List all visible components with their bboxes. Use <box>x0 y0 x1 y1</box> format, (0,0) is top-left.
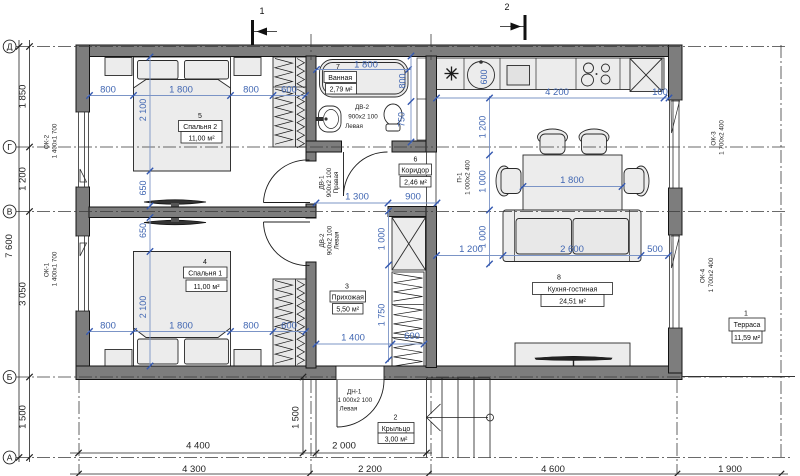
svg-text:11,59 м²: 11,59 м² <box>734 335 761 342</box>
svg-text:2 100: 2 100 <box>138 296 148 319</box>
svg-text:1 800: 1 800 <box>169 321 193 332</box>
svg-text:5,50 м²: 5,50 м² <box>336 307 359 314</box>
svg-text:1 800: 1 800 <box>560 175 584 186</box>
svg-text:7: 7 <box>336 64 340 71</box>
svg-text:В: В <box>7 207 13 217</box>
svg-text:6: 6 <box>414 157 418 164</box>
svg-text:ДН-1: ДН-1 <box>347 389 362 396</box>
svg-text:Крыльцо: Крыльцо <box>382 426 411 433</box>
svg-text:Кухня-гостиная: Кухня-гостиная <box>548 286 598 293</box>
svg-text:1 400: 1 400 <box>341 333 365 344</box>
svg-text:ОК-2: ОК-2 <box>44 134 51 149</box>
svg-text:2: 2 <box>394 415 398 422</box>
svg-text:ДВ-2: ДВ-2 <box>319 233 326 248</box>
svg-text:1 200: 1 200 <box>18 167 29 191</box>
svg-text:1 750: 1 750 <box>377 304 387 327</box>
svg-text:Спальня 2: Спальня 2 <box>183 124 217 131</box>
svg-text:1 200: 1 200 <box>459 244 483 255</box>
svg-text:4 300: 4 300 <box>182 464 206 475</box>
svg-text:Ванная: Ванная <box>328 75 352 82</box>
svg-text:1 200: 1 200 <box>478 116 488 139</box>
svg-text:ОК-4: ОК-4 <box>700 268 707 283</box>
svg-text:Левая: Левая <box>345 123 363 130</box>
svg-text:1 800: 1 800 <box>354 60 378 71</box>
svg-text:1 000: 1 000 <box>377 228 387 251</box>
svg-text:1: 1 <box>259 6 264 16</box>
svg-text:1 500: 1 500 <box>291 406 301 429</box>
svg-text:1 300: 1 300 <box>345 192 369 203</box>
svg-text:4 600: 4 600 <box>541 464 565 475</box>
svg-text:11,00 м²: 11,00 м² <box>193 284 220 291</box>
svg-text:1 700х2 400: 1 700х2 400 <box>719 120 726 155</box>
svg-text:А: А <box>7 453 13 463</box>
svg-text:900х2 100: 900х2 100 <box>348 114 378 121</box>
svg-text:Прихожая: Прихожая <box>331 294 364 301</box>
svg-text:24,51 м²: 24,51 м² <box>559 298 586 305</box>
svg-text:2 200: 2 200 <box>358 464 382 475</box>
svg-text:1 000х2 400: 1 000х2 400 <box>465 160 472 195</box>
svg-text:1: 1 <box>744 311 748 318</box>
svg-text:Спальня 1: Спальня 1 <box>188 270 222 277</box>
svg-text:500: 500 <box>647 244 663 255</box>
svg-text:ДВ-2: ДВ-2 <box>355 104 370 111</box>
svg-text:7 600: 7 600 <box>4 234 15 258</box>
svg-text:2 600: 2 600 <box>560 244 584 255</box>
svg-text:1 700х2 400: 1 700х2 400 <box>708 257 715 292</box>
svg-text:800: 800 <box>100 321 116 332</box>
svg-text:900х2 100: 900х2 100 <box>326 167 333 197</box>
svg-text:800: 800 <box>243 85 259 96</box>
svg-text:1 000: 1 000 <box>478 170 488 193</box>
svg-text:ОК-3: ОК-3 <box>711 131 718 146</box>
svg-text:4 200: 4 200 <box>545 87 569 98</box>
svg-text:8: 8 <box>557 275 561 282</box>
svg-text:3 050: 3 050 <box>18 282 29 306</box>
svg-text:Левая: Левая <box>334 232 341 250</box>
svg-text:600: 600 <box>281 321 297 332</box>
svg-text:800: 800 <box>243 321 259 332</box>
svg-text:2: 2 <box>504 2 509 12</box>
svg-text:650: 650 <box>138 223 148 238</box>
svg-text:650: 650 <box>138 180 148 195</box>
svg-text:1 900: 1 900 <box>718 464 742 475</box>
svg-text:1 500: 1 500 <box>18 405 29 429</box>
svg-text:3: 3 <box>345 284 349 291</box>
svg-text:Терраса: Терраса <box>734 322 761 329</box>
svg-text:800: 800 <box>398 73 408 88</box>
svg-text:Правая: Правая <box>333 172 340 194</box>
svg-text:Б: Б <box>7 372 13 382</box>
svg-text:11,00 м²: 11,00 м² <box>188 135 215 142</box>
svg-text:Д: Д <box>7 42 13 52</box>
svg-text:Г: Г <box>7 142 12 152</box>
svg-text:600: 600 <box>281 85 297 96</box>
svg-text:1 400х1 700: 1 400х1 700 <box>52 123 59 158</box>
svg-text:800: 800 <box>100 85 116 96</box>
svg-text:2 100: 2 100 <box>138 99 148 122</box>
svg-text:900: 900 <box>405 192 421 203</box>
svg-text:600: 600 <box>404 331 420 342</box>
svg-text:1 800: 1 800 <box>169 85 193 96</box>
svg-text:2,79 м²: 2,79 м² <box>330 87 353 94</box>
svg-text:Коридор: Коридор <box>401 167 429 174</box>
svg-text:1 000х2 100: 1 000х2 100 <box>338 397 373 404</box>
svg-text:4 400: 4 400 <box>186 441 210 452</box>
svg-text:900х2 100: 900х2 100 <box>327 225 334 255</box>
svg-text:1 400х1 700: 1 400х1 700 <box>52 251 59 286</box>
svg-text:750: 750 <box>397 112 407 127</box>
svg-text:5: 5 <box>198 113 202 120</box>
svg-text:ОК-1: ОК-1 <box>44 262 51 277</box>
svg-text:2,46 м²: 2,46 м² <box>404 180 427 187</box>
svg-text:600: 600 <box>479 69 489 84</box>
svg-text:4: 4 <box>203 259 207 266</box>
svg-text:ДВ-1: ДВ-1 <box>319 175 326 190</box>
svg-text:2 000: 2 000 <box>332 441 356 452</box>
svg-text:П-1: П-1 <box>457 172 464 183</box>
svg-text:Левая: Левая <box>340 406 358 413</box>
svg-text:3,00 м²: 3,00 м² <box>385 436 408 443</box>
svg-text:100: 100 <box>652 87 668 98</box>
svg-text:1 850: 1 850 <box>18 85 29 109</box>
